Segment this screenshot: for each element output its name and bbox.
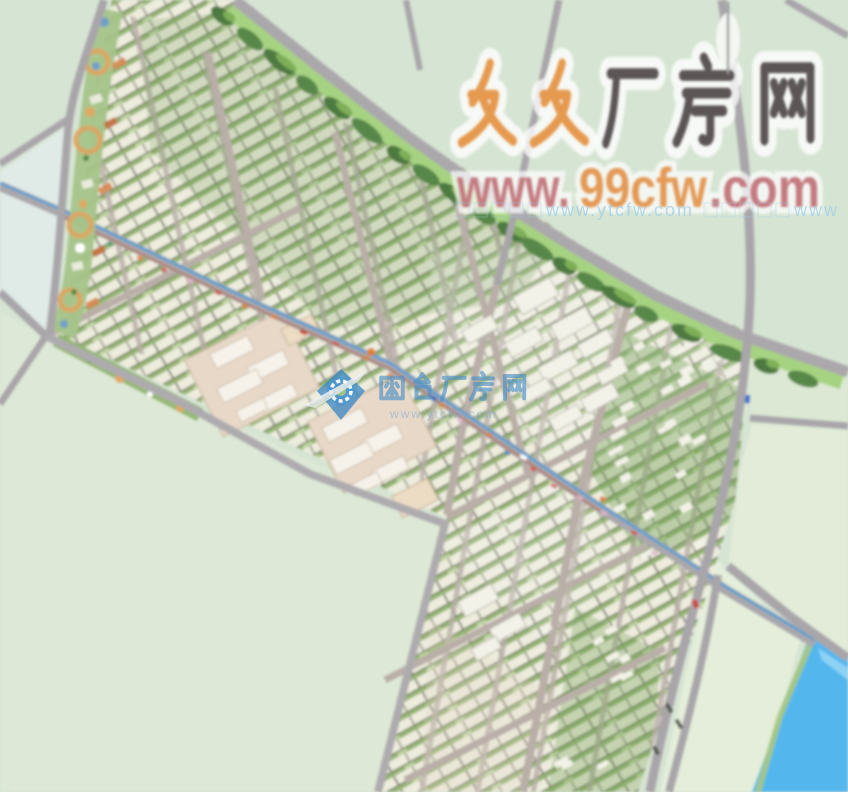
svg-text:www.ytcfw.com: www.ytcfw.com [389,407,497,421]
svg-text:www: www [793,200,839,220]
svg-text:www.ytcfw.com: www.ytcfw.com [545,200,694,220]
